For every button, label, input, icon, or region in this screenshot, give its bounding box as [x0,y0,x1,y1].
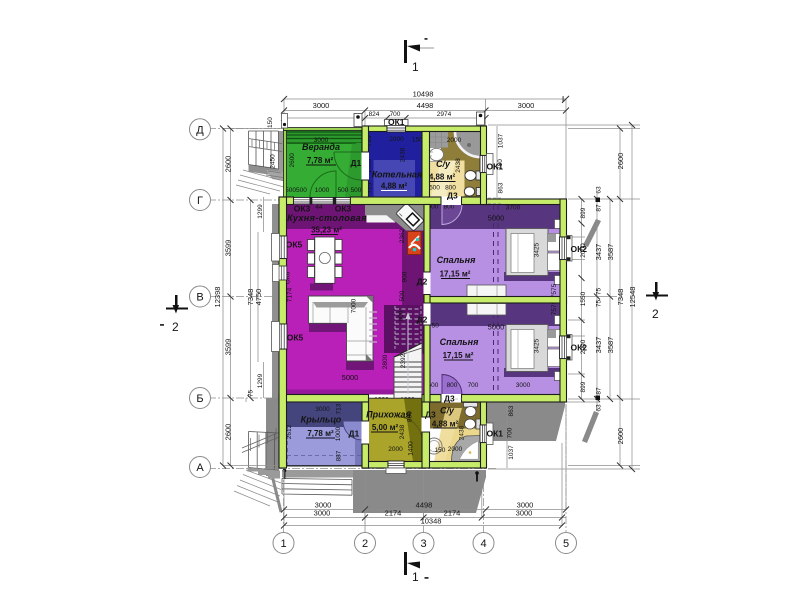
svg-text:3599: 3599 [224,240,233,257]
svg-text:Спальня: Спальня [437,255,476,265]
svg-text:3000: 3000 [516,509,533,518]
svg-text:1037: 1037 [508,445,515,460]
svg-text:ОК3: ОК3 [335,204,352,214]
svg-text:Б: Б [196,393,203,405]
svg-text:Д: Д [196,124,204,136]
svg-text:ОК2: ОК2 [571,244,588,254]
svg-text:5000: 5000 [488,214,505,223]
svg-text:ОК1: ОК1 [388,117,405,127]
svg-text:1: 1 [280,538,286,550]
svg-text:900: 900 [398,310,405,321]
svg-text:5: 5 [563,538,569,550]
svg-text:2000: 2000 [389,136,404,143]
svg-text:2600: 2600 [224,424,233,441]
svg-text:3000: 3000 [516,382,531,389]
svg-text:863: 863 [498,182,505,193]
svg-text:Д3: Д3 [425,410,436,420]
svg-text:В: В [196,292,203,304]
svg-text:3437: 3437 [594,337,603,354]
svg-text:700: 700 [468,382,479,389]
svg-text:887: 887 [335,450,342,461]
svg-text:87: 87 [596,204,603,212]
svg-text:150: 150 [435,447,446,454]
svg-text:3425: 3425 [534,242,541,257]
svg-text:3437: 3437 [594,244,603,261]
svg-text:2974: 2974 [437,111,452,118]
svg-text:1550: 1550 [580,291,587,306]
svg-text:1: 1 [412,60,419,74]
svg-text:3000: 3000 [518,101,535,110]
svg-text:150: 150 [267,117,274,128]
svg-text:5000: 5000 [342,373,359,382]
svg-text:3700: 3700 [506,205,521,212]
svg-text:Г: Г [197,195,203,207]
svg-text:Д1: Д1 [351,158,362,168]
svg-text:899: 899 [580,207,587,218]
svg-text:2600: 2600 [224,156,233,173]
svg-text:4498: 4498 [416,501,433,510]
svg-text:12398: 12398 [213,287,222,308]
svg-text:1400: 1400 [408,441,415,456]
svg-text:1000: 1000 [315,187,330,194]
svg-text:75: 75 [596,288,603,296]
svg-text:10498: 10498 [413,90,434,99]
svg-text:17,15 м²: 17,15 м² [443,351,474,360]
svg-text:3599: 3599 [224,339,233,356]
svg-text:3000: 3000 [315,406,330,413]
svg-text:Прихожая: Прихожая [366,410,411,420]
svg-text:824: 824 [369,111,380,118]
svg-text:4,88 м²: 4,88 м² [429,173,456,182]
svg-text:900: 900 [402,271,409,282]
svg-text:2392: 2392 [400,353,407,368]
svg-text:4: 4 [480,538,486,550]
svg-text:Д2: Д2 [417,315,428,325]
svg-text:2438: 2438 [400,147,407,162]
svg-text:63: 63 [596,404,603,412]
svg-text:3587: 3587 [606,244,615,261]
svg-text:2438: 2438 [459,425,466,440]
svg-text:С/у: С/у [440,406,455,416]
svg-text:87: 87 [596,387,603,395]
svg-text:2362: 2362 [399,228,406,243]
svg-text:Спальня: Спальня [440,337,479,347]
svg-text:ОК1: ОК1 [487,162,504,172]
svg-text:7348: 7348 [616,289,625,306]
svg-text:2600: 2600 [616,428,625,445]
svg-text:5000: 5000 [488,323,505,332]
svg-text:Д3: Д3 [447,191,458,201]
svg-text:7,78 м²: 7,78 м² [307,429,334,438]
svg-text:3000: 3000 [314,509,331,518]
svg-text:1299: 1299 [257,373,264,388]
svg-text:3425: 3425 [534,338,541,353]
svg-text:С/у: С/у [436,159,451,169]
svg-text:7,78 м²: 7,78 м² [307,156,334,165]
svg-text:Веранда: Веранда [302,142,340,152]
svg-text:500: 500 [429,185,440,192]
svg-text:713: 713 [336,403,343,414]
svg-text:ОК1: ОК1 [487,429,504,439]
svg-text:Д1: Д1 [349,429,360,439]
svg-text:5,00 м²: 5,00 м² [372,423,399,432]
svg-text:500: 500 [338,187,349,194]
svg-text:35,23 м²: 35,23 м² [311,226,342,235]
svg-text:12548: 12548 [628,287,637,308]
svg-text:2000: 2000 [448,446,463,453]
svg-text:3: 3 [420,538,426,550]
svg-text:Котельная: Котельная [372,170,423,180]
svg-text:2000: 2000 [447,137,462,144]
svg-text:3587: 3587 [606,337,615,354]
svg-text:Д3: Д3 [444,394,455,404]
svg-text:2174: 2174 [444,509,461,518]
svg-text:4498: 4498 [417,101,434,110]
svg-text:75: 75 [248,390,255,398]
svg-text:ОК3: ОК3 [294,204,311,214]
svg-text:2438: 2438 [399,424,406,439]
svg-text:10348: 10348 [421,517,442,526]
svg-text:1: 1 [412,570,419,584]
svg-text:2600: 2600 [289,153,296,168]
svg-text:Крыльцо: Крыльцо [301,415,342,425]
svg-text:2600: 2600 [616,153,625,170]
svg-text:150: 150 [412,137,423,144]
svg-text:2174: 2174 [385,509,402,518]
svg-text:500: 500 [399,290,406,301]
svg-text:17,15 м²: 17,15 м² [440,270,471,279]
svg-text:44: 44 [315,204,323,211]
svg-text:2: 2 [362,538,368,550]
svg-text:500500: 500500 [285,187,307,194]
svg-text:4750: 4750 [254,289,263,306]
svg-text:1299: 1299 [257,204,264,219]
svg-text:А: А [196,462,204,474]
svg-text:7174: 7174 [287,287,294,302]
svg-text:2438: 2438 [455,158,462,173]
svg-text:700: 700 [507,427,514,438]
svg-text:863: 863 [508,405,515,416]
svg-text:800: 800 [447,382,458,389]
svg-text:ОК5: ОК5 [287,333,304,343]
svg-text:1037: 1037 [498,133,505,148]
svg-text:Кухня-столовая: Кухня-столовая [287,213,367,223]
svg-text:4,88 м²: 4,88 м² [381,182,408,191]
svg-text:ОК5: ОК5 [286,240,303,250]
svg-text:2: 2 [652,307,659,321]
svg-text:7000: 7000 [351,298,358,313]
svg-text:ОК2: ОК2 [571,343,588,353]
svg-text:63: 63 [596,186,603,194]
svg-text:4,88 м²: 4,88 м² [432,420,459,429]
svg-text:899: 899 [580,381,587,392]
svg-text:3000: 3000 [313,101,330,110]
svg-text:2800: 2800 [382,354,389,369]
svg-text:2: 2 [172,320,179,334]
svg-text:2000: 2000 [388,446,403,453]
svg-text:2450: 2450 [270,154,277,169]
svg-text:75: 75 [596,300,603,308]
svg-text:1000: 1000 [335,426,342,441]
svg-text:500: 500 [351,187,362,194]
svg-text:Д2: Д2 [417,277,428,287]
